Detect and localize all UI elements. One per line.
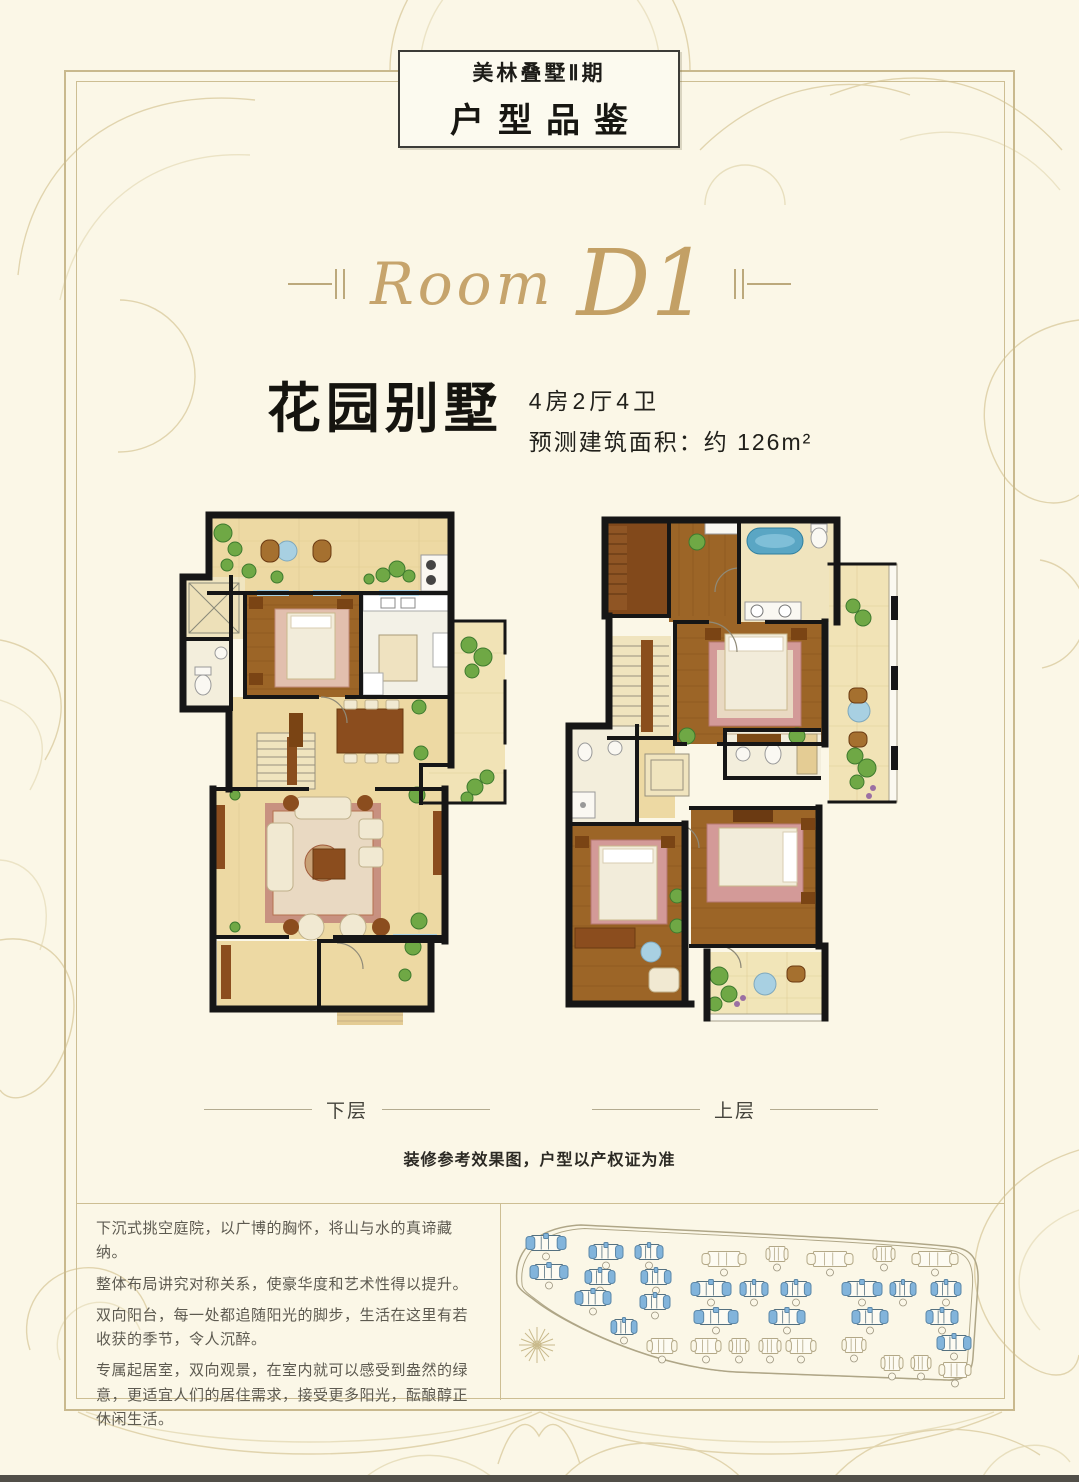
building-outline bbox=[759, 1339, 781, 1364]
site-plan-map bbox=[501, 1205, 1005, 1399]
floor-label-lower: 下层 bbox=[169, 1096, 525, 1123]
building-outline bbox=[881, 1356, 903, 1381]
building-highlighted bbox=[641, 1268, 671, 1295]
project-name: 美林叠墅Ⅱ期 bbox=[472, 57, 605, 87]
building-outline bbox=[786, 1339, 816, 1364]
building-outline bbox=[647, 1339, 677, 1364]
description-text: 下沉式挑空庭院，以广博的胸怀，将山与水的真谛藏纳。整体布局讲究对称关系，使豪华度… bbox=[76, 1204, 500, 1400]
building-highlighted bbox=[740, 1280, 768, 1307]
building-highlighted bbox=[575, 1289, 611, 1316]
compass-icon bbox=[519, 1327, 555, 1363]
building-outline bbox=[912, 1252, 958, 1277]
building-highlighted bbox=[640, 1293, 670, 1320]
building-outline bbox=[939, 1363, 971, 1388]
building-outline bbox=[691, 1339, 721, 1364]
building-outline bbox=[702, 1252, 746, 1277]
building-highlighted bbox=[589, 1243, 623, 1270]
title-ornament-left-icon bbox=[288, 264, 352, 304]
title-ornament-right-icon bbox=[727, 264, 791, 304]
building-highlighted bbox=[781, 1280, 811, 1307]
floor-label-lower-text: 下层 bbox=[326, 1096, 368, 1123]
building-highlighted bbox=[691, 1280, 731, 1307]
building-outline bbox=[911, 1356, 931, 1381]
building-highlighted bbox=[526, 1234, 566, 1261]
building-highlighted bbox=[890, 1280, 916, 1307]
building-highlighted bbox=[635, 1243, 663, 1270]
label-rule-left bbox=[592, 1109, 700, 1110]
building-highlighted bbox=[852, 1308, 888, 1335]
building-highlighted bbox=[931, 1280, 961, 1307]
building-highlighted bbox=[611, 1318, 637, 1345]
building-outline bbox=[729, 1339, 749, 1364]
floor-area: 预测建筑面积：约 126m² bbox=[529, 423, 813, 457]
unit-specs: 4房2厅4卫 预测建筑面积：约 126m² bbox=[529, 382, 813, 457]
building-highlighted bbox=[769, 1308, 805, 1335]
floorplan-upper bbox=[557, 506, 913, 1066]
room-title-unit: D1 bbox=[577, 238, 709, 330]
building-highlighted bbox=[842, 1280, 882, 1307]
building-outline bbox=[766, 1247, 788, 1272]
brochure-page: 美林叠墅Ⅱ期 户型品鉴 Room D1 花园别墅 4房2厅4卫 预测建筑面积：约… bbox=[0, 0, 1079, 1482]
label-rule-right bbox=[770, 1109, 878, 1110]
building-outline bbox=[873, 1247, 895, 1272]
site-buildings bbox=[526, 1234, 971, 1388]
building-highlighted bbox=[530, 1263, 568, 1290]
room-title-script: Room bbox=[370, 255, 555, 313]
headline-block: 花园别墅 4房2厅4卫 预测建筑面积：约 126m² bbox=[0, 376, 1079, 457]
floor-label-upper-text: 上层 bbox=[714, 1096, 756, 1123]
photo-edge-strip bbox=[0, 1475, 1079, 1482]
label-rule-left bbox=[204, 1109, 312, 1110]
description-paragraph: 整体布局讲究对称关系，使豪华度和艺术性得以提升。 bbox=[96, 1273, 480, 1297]
building-outline bbox=[807, 1252, 853, 1277]
room-count: 4房2厅4卫 bbox=[529, 382, 813, 416]
description-paragraph: 下沉式挑空庭院，以广博的胸怀，将山与水的真谛藏纳。 bbox=[96, 1217, 480, 1266]
label-rule-right bbox=[382, 1109, 490, 1110]
building-highlighted bbox=[694, 1308, 738, 1335]
info-panel: 下沉式挑空庭院，以广博的胸怀，将山与水的真谛藏纳。整体布局讲究对称关系，使豪华度… bbox=[76, 1203, 1005, 1399]
building-highlighted bbox=[926, 1308, 958, 1335]
floorplan-lower bbox=[169, 503, 525, 1079]
badge-title: 户型品鉴 bbox=[436, 93, 642, 142]
description-paragraph: 双向阳台，每一处都追随阳光的脚步，生活在这里有若收获的季节，令人沉醉。 bbox=[96, 1304, 480, 1353]
unit-type-title: 花园别墅 bbox=[267, 376, 503, 444]
disclaimer-note: 装修参考效果图，户型以产权证为准 bbox=[0, 1146, 1079, 1170]
description-paragraph: 专属起居室，双向观景，在室内就可以感受到盎然的绿意，更适宜人们的居住需求，接受更… bbox=[96, 1359, 480, 1432]
building-highlighted bbox=[937, 1334, 971, 1361]
building-outline bbox=[842, 1338, 866, 1363]
project-badge: 美林叠墅Ⅱ期 户型品鉴 bbox=[398, 50, 680, 148]
room-title: Room D1 bbox=[0, 226, 1079, 342]
floor-label-upper: 上层 bbox=[557, 1096, 913, 1123]
